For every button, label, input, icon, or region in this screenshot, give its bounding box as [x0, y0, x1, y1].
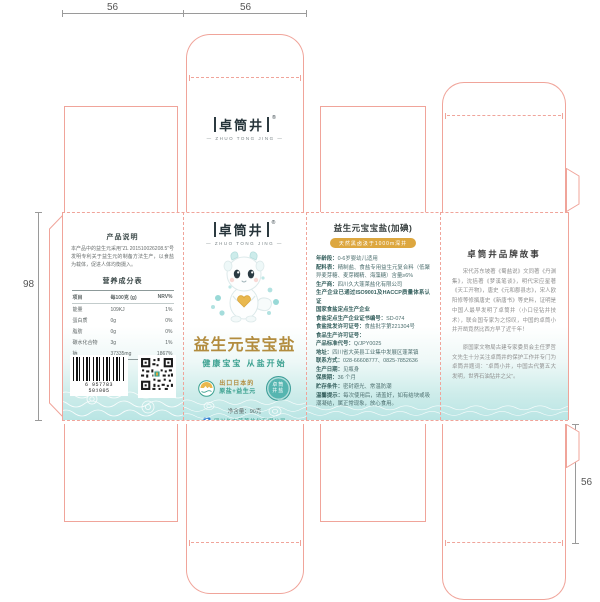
brand-logo-text: 卓筒井 — [219, 115, 264, 134]
info-value: 四川久大蓬莱盐化有限公司 — [338, 282, 403, 288]
fold-line-bottom — [62, 420, 568, 421]
info-label: 生产日期： — [316, 367, 343, 373]
panel-front: 卓筒井 ® — ZHUO TONG JING — — [183, 212, 306, 420]
info-label: 年龄段： — [316, 256, 338, 262]
bottom-dust-flap-left — [64, 424, 178, 522]
table-row: 蛋白质 0g 0% — [72, 315, 174, 326]
cut-line-right — [568, 212, 569, 420]
info-line: 配料表：精制盐、食盐专用益生元复合料（低聚异麦芽糖、麦芽糊精、海藻糖）含量≥6% — [316, 264, 430, 281]
story-paragraph: 原国家文物局古建专家委员会主任罗哲文先生十分关注卓筒井的保护工作并专门为卓筒井题… — [452, 344, 556, 383]
logo-bar — [214, 117, 216, 132]
cell: 0% — [152, 326, 174, 337]
info-line: 保质期：36 个月 — [316, 374, 430, 383]
info-label: 温馨提示： — [316, 393, 343, 399]
top-tuck-lid-back — [442, 82, 566, 212]
logo-bar — [267, 222, 269, 237]
info-line: 生产企业已通过ISO9001及HACCP质量体系认证 — [316, 289, 430, 306]
dim-line-top-center — [183, 13, 306, 14]
fold-line — [447, 115, 561, 116]
back-title: 益生元宝宝盐(加碘) — [306, 222, 440, 234]
dim-tick — [62, 10, 63, 17]
dim-label-left: 98 — [20, 280, 37, 290]
fold-line-v2 — [306, 212, 307, 420]
logo-bar — [267, 117, 269, 132]
dim-label-top-left: 56 — [104, 3, 121, 13]
cell: 0g — [110, 326, 152, 337]
cut-line-left — [62, 212, 63, 420]
info-line: 食盐批发许可证号：食盐批字第221304号 — [316, 323, 430, 332]
table-row: 碳水化合物 3g 1% — [72, 337, 174, 348]
brand-logo-lockup: 卓筒井 ® — ZHUO TONG JING — — [187, 115, 303, 141]
desc-text: 本产品中的益生元采用“ZL 201510026208.5”号发明专利关于益生元的… — [71, 246, 174, 269]
info-value: 四川省大英县工业集中发展区蓬莱镇 — [332, 350, 418, 356]
cell: 能量 — [72, 304, 110, 316]
export-badge-icon — [198, 380, 215, 397]
bottom-tuck-lid — [186, 424, 304, 594]
info-label: 食盐定点生产企业证书编号： — [316, 316, 386, 322]
dieline-canvas: 56 56 98 56 卓筒井 ® — ZHUO TONG JING — — [0, 0, 600, 602]
info-value: SD-074 — [386, 316, 404, 322]
info-label: 食盐批发许可证号： — [316, 324, 365, 330]
info-value: 36 个月 — [338, 375, 356, 381]
barcode-number: 6 957783 501005 — [73, 382, 125, 394]
info-line: 温馨提示：每次使用后，请盖好，如有结块或吸潮凝结，属正常现象，放心食用。 — [316, 392, 430, 409]
info-value: 生产企业已通过ISO9001及HACCP质量体系认证 — [316, 290, 430, 305]
info-line: 贮存条件：密封避光、常温防潮 — [316, 383, 430, 392]
info-line: 国家食盐定点生产企业 — [316, 306, 430, 315]
product-subtitle: 健康宝宝 从盐开始 — [183, 358, 306, 369]
info-label: 产品标准代号： — [316, 341, 354, 347]
info-value: Q/JPY0025 — [354, 341, 382, 347]
col-header: NRV% — [152, 291, 174, 304]
info-label: 贮存条件： — [316, 384, 343, 390]
cell: 0% — [152, 315, 174, 326]
info-value: 食盐批字第221304号 — [365, 324, 415, 330]
nutrition-title: 营养成分表 — [62, 276, 183, 286]
seal-text: 井盐 — [272, 389, 284, 395]
brine-pill-badge: 天然黑卤汲于1000m深井 — [330, 238, 416, 248]
info-value: 密封避光、常温防潮 — [343, 384, 392, 390]
panel-product-info: 产品说明 本产品中的益生元采用“ZL 201510026208.5”号发明专利关… — [62, 212, 183, 420]
table-header-row: 项目 每100克 (g) NRV% — [72, 291, 174, 304]
logo-bar — [214, 222, 216, 237]
table-row: 脂肪 0g 0% — [72, 326, 174, 337]
glue-tab — [49, 215, 63, 417]
bottom-dust-flap-right — [320, 424, 426, 522]
info-value: 见瓶身 — [343, 367, 359, 373]
col-header: 项目 — [72, 291, 110, 304]
story-title: 卓筒井品牌故事 — [440, 248, 568, 260]
qr-code-icon — [140, 357, 174, 391]
info-line: 食品生产许可证号： — [316, 332, 430, 341]
barcode-bars — [73, 357, 125, 381]
info-label: 生产商： — [316, 282, 338, 288]
cell: 1% — [152, 337, 174, 348]
dim-label-top-center: 56 — [237, 3, 254, 13]
wave-decoration — [440, 403, 568, 419]
fold-line — [191, 77, 299, 78]
fold-line — [447, 542, 561, 543]
cell: 109KJ — [110, 304, 152, 316]
info-line: 产品标准代号：Q/JPY0025 — [316, 340, 430, 349]
panel-brand-story: 卓筒井品牌故事 宋代苏东坡著《蜀盐说》文同著《丹渊集》，沈括著《梦溪笔谈》，明代… — [440, 212, 568, 420]
codes-row: 6 957783 501005 — [70, 355, 176, 398]
dim-tick — [306, 10, 307, 17]
dim-tick — [35, 212, 42, 213]
fold-line-top — [62, 212, 568, 213]
info-label: 保质期： — [316, 375, 338, 381]
top-dust-flap-right — [320, 106, 426, 212]
cell: 3g — [110, 337, 152, 348]
dim-line-top-left — [62, 13, 183, 14]
story-paragraph: 宋代苏东坡著《蜀盐说》文同著《丹渊集》，沈括著《梦溪笔谈》，明代宋应星著《天工开… — [452, 268, 556, 336]
side-tab — [566, 168, 580, 212]
dim-tick — [572, 543, 579, 544]
brand-tagline: — ZHUO TONG JING — — [207, 136, 284, 141]
info-line: 联系方式：028-66608777、0825-7852636 — [316, 357, 430, 366]
brand-tagline: — ZHUO TONG JING — — [206, 241, 283, 246]
panel-back-info: 益生元宝宝盐(加碘) 天然黑卤汲于1000m深井 年龄段：0-6岁婴幼儿适用 配… — [306, 212, 440, 420]
info-value: 0-6岁婴幼儿适用 — [338, 256, 378, 262]
desc-title: 产品说明 — [62, 232, 183, 242]
bottom-tuck-lid-back — [442, 424, 566, 600]
top-dust-flap-left — [64, 106, 178, 212]
info-line: 地址：四川省大英县工业集中发展区蓬莱镇 — [316, 349, 430, 358]
fold-line-v1 — [183, 212, 184, 420]
col-header: 每100克 (g) — [110, 291, 152, 304]
fold-line-v3 — [440, 212, 441, 420]
table-row: 能量 109KJ 1% — [72, 304, 174, 316]
registered-mark: ® — [272, 115, 276, 121]
cell: 1% — [152, 304, 174, 316]
registered-mark: ® — [272, 220, 276, 226]
barcode: 6 957783 501005 — [70, 355, 128, 396]
info-line: 年龄段：0-6岁婴幼儿适用 — [316, 255, 430, 264]
info-line: 生产商：四川久大蓬莱盐化有限公司 — [316, 281, 430, 290]
cell: 蛋白质 — [72, 315, 110, 326]
export-badge: 出口日本的 原盐+益生元 卓筒 井盐 — [183, 376, 306, 401]
dim-tick — [35, 420, 42, 421]
mascot-character — [206, 250, 284, 326]
info-label: 食品生产许可证号： — [316, 333, 365, 339]
dim-label-bottom-right: 56 — [578, 478, 595, 488]
info-list: 年龄段：0-6岁婴幼儿适用 配料表：精制盐、食盐专用益生元复合料（低聚异麦芽糖、… — [316, 255, 430, 409]
badge-line1: 出口日本的 — [219, 381, 256, 389]
info-label: 配料表： — [316, 265, 338, 271]
cell: 碳水化合物 — [72, 337, 110, 348]
nutrition-table: 项目 每100克 (g) NRV% 能量 109KJ 1% 蛋白质 0g 0% … — [72, 290, 174, 360]
dim-line-left — [38, 212, 39, 420]
fold-line — [191, 542, 299, 543]
round-seal-stamp: 卓筒 井盐 — [266, 376, 291, 401]
info-line: 食盐定点生产企业证书编号：SD-074 — [316, 315, 430, 324]
side-tab — [566, 424, 580, 468]
brand-logo-lockup: 卓筒井 ® — ZHUO TONG JING — — [183, 220, 306, 246]
info-line: 生产日期：见瓶身 — [316, 366, 430, 375]
info-label: 联系方式： — [316, 358, 343, 364]
net-weight: 净含量：90克 — [183, 407, 306, 415]
info-value: 国家食盐定点生产企业 — [316, 307, 370, 313]
brand-logo-text: 卓筒井 — [219, 220, 264, 239]
info-value: 028-66608777、0825-7852636 — [343, 358, 418, 364]
badge-line2: 原盐+益生元 — [219, 389, 256, 397]
qr-code — [138, 355, 176, 398]
product-title: 益生元宝宝盐 — [183, 331, 306, 355]
cell: 脂肪 — [72, 326, 110, 337]
info-label: 地址： — [316, 350, 332, 356]
cell: 0g — [110, 315, 152, 326]
top-tuck-lid: 卓筒井 ® — ZHUO TONG JING — — [186, 34, 304, 212]
